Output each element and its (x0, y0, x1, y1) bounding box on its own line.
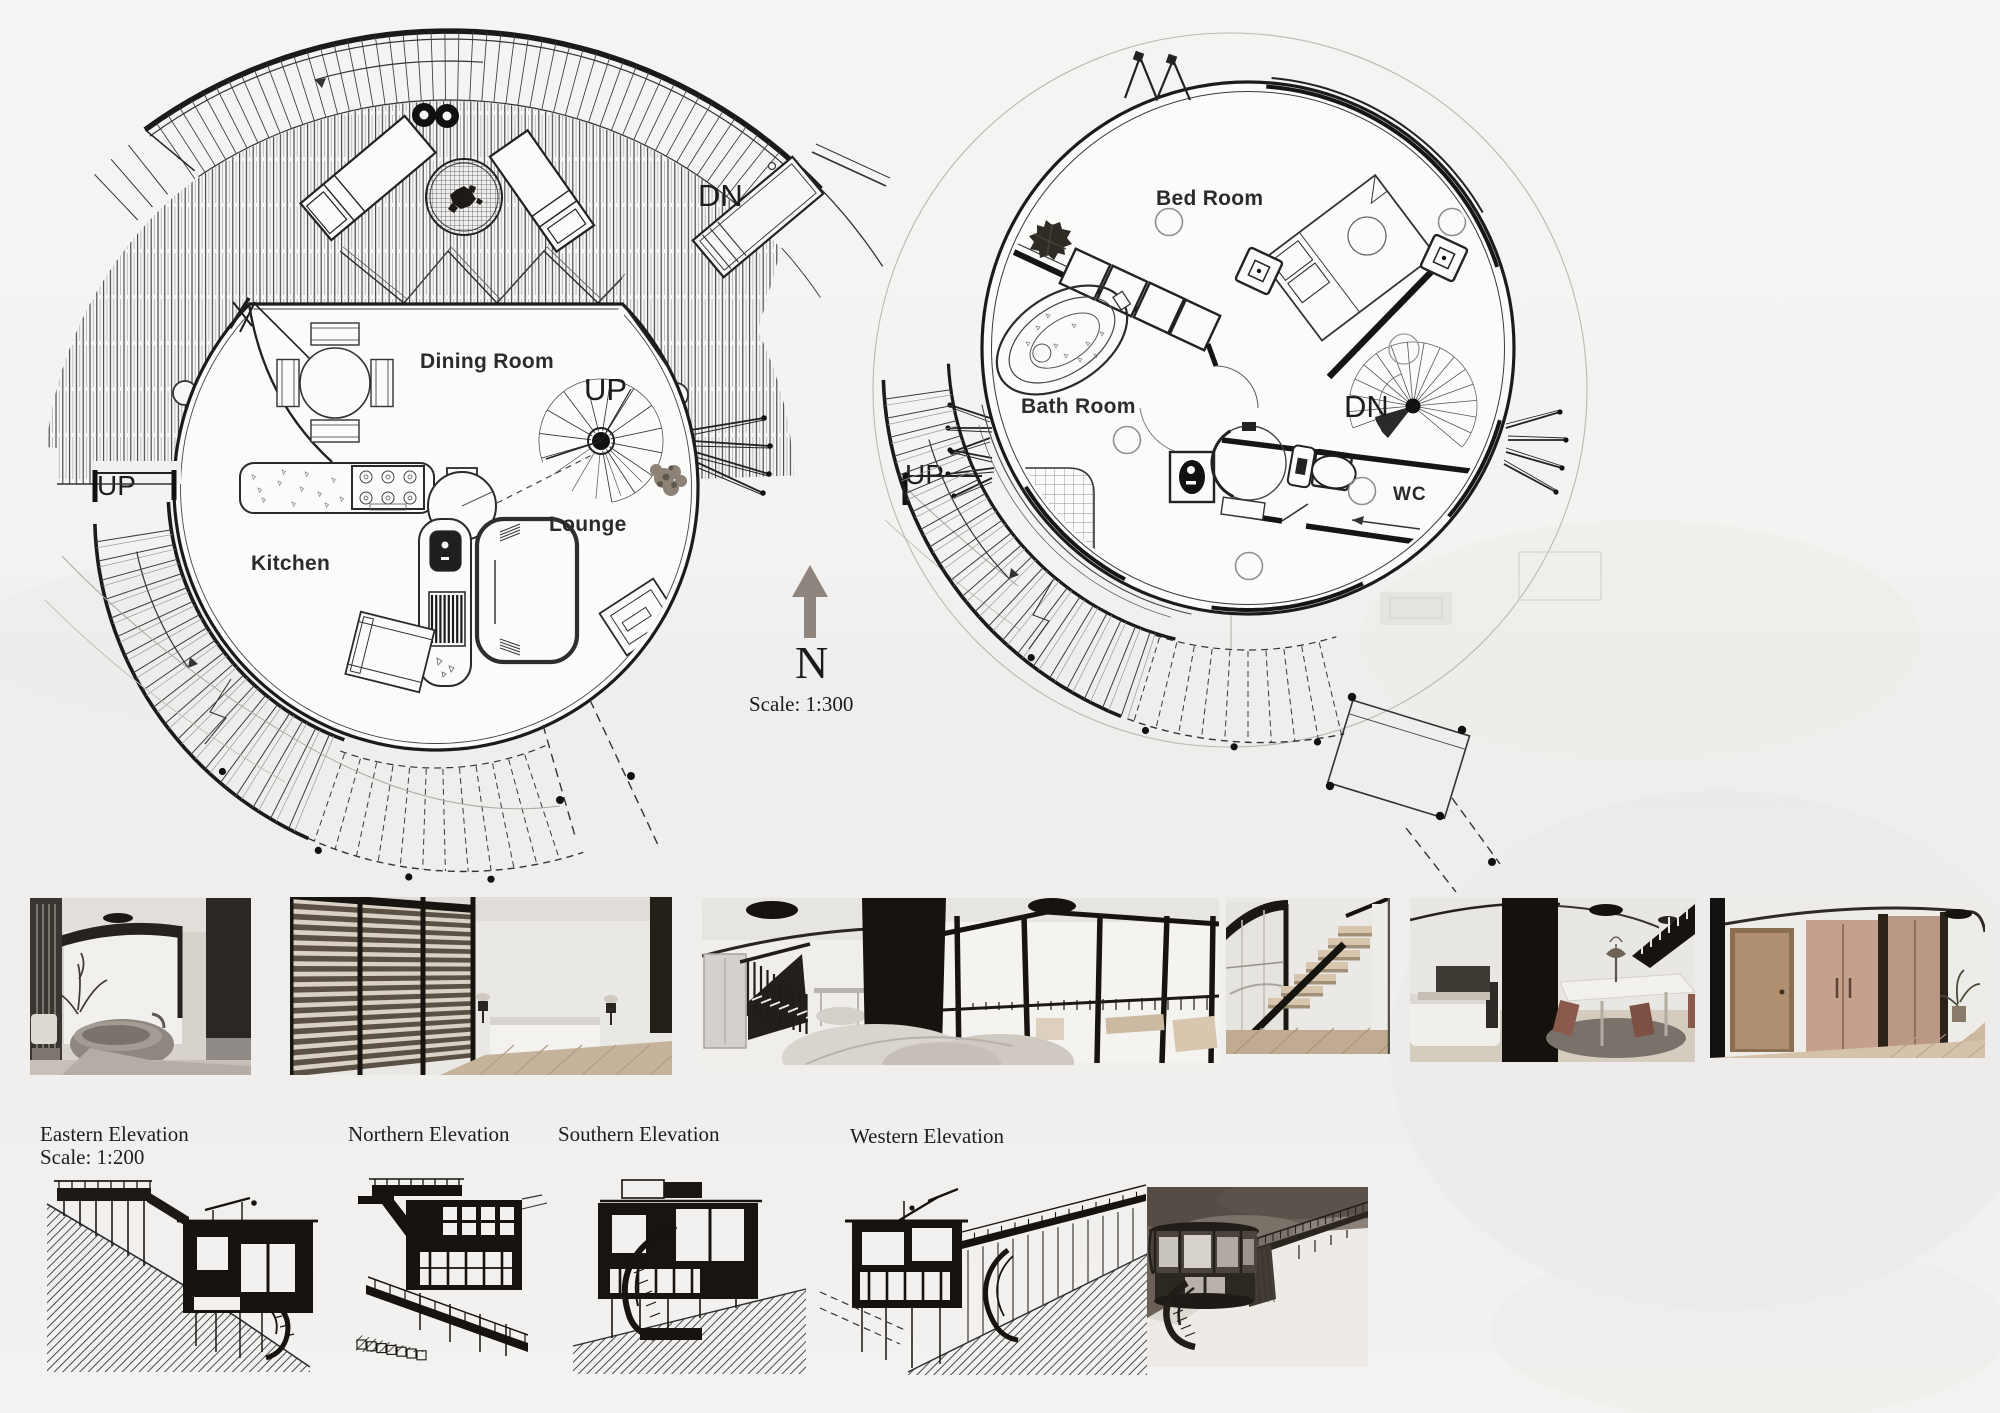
svg-text:Lounge: Lounge (549, 513, 627, 536)
svg-text:DN: DN (1344, 389, 1389, 424)
svg-text:Scale: 1:200: Scale: 1:200 (40, 1145, 144, 1169)
svg-text:Eastern Elevation: Eastern Elevation (40, 1122, 189, 1146)
svg-text:UP: UP (97, 470, 136, 501)
svg-text:Bath Room: Bath Room (1021, 395, 1136, 418)
svg-text:Southern Elevation: Southern Elevation (558, 1122, 720, 1146)
svg-text:Northern Elevation: Northern Elevation (348, 1122, 510, 1146)
svg-text:WC: WC (1393, 484, 1427, 505)
svg-text:DN: DN (698, 178, 743, 213)
svg-text:Western Elevation: Western Elevation (850, 1124, 1005, 1148)
svg-text:Bed Room: Bed Room (1156, 187, 1263, 210)
svg-text:Scale: 1:300: Scale: 1:300 (749, 692, 853, 716)
svg-text:Kitchen: Kitchen (251, 552, 330, 575)
svg-text:Dining Room: Dining Room (420, 350, 554, 373)
svg-text:UP: UP (584, 372, 627, 407)
svg-text:N: N (795, 637, 828, 688)
